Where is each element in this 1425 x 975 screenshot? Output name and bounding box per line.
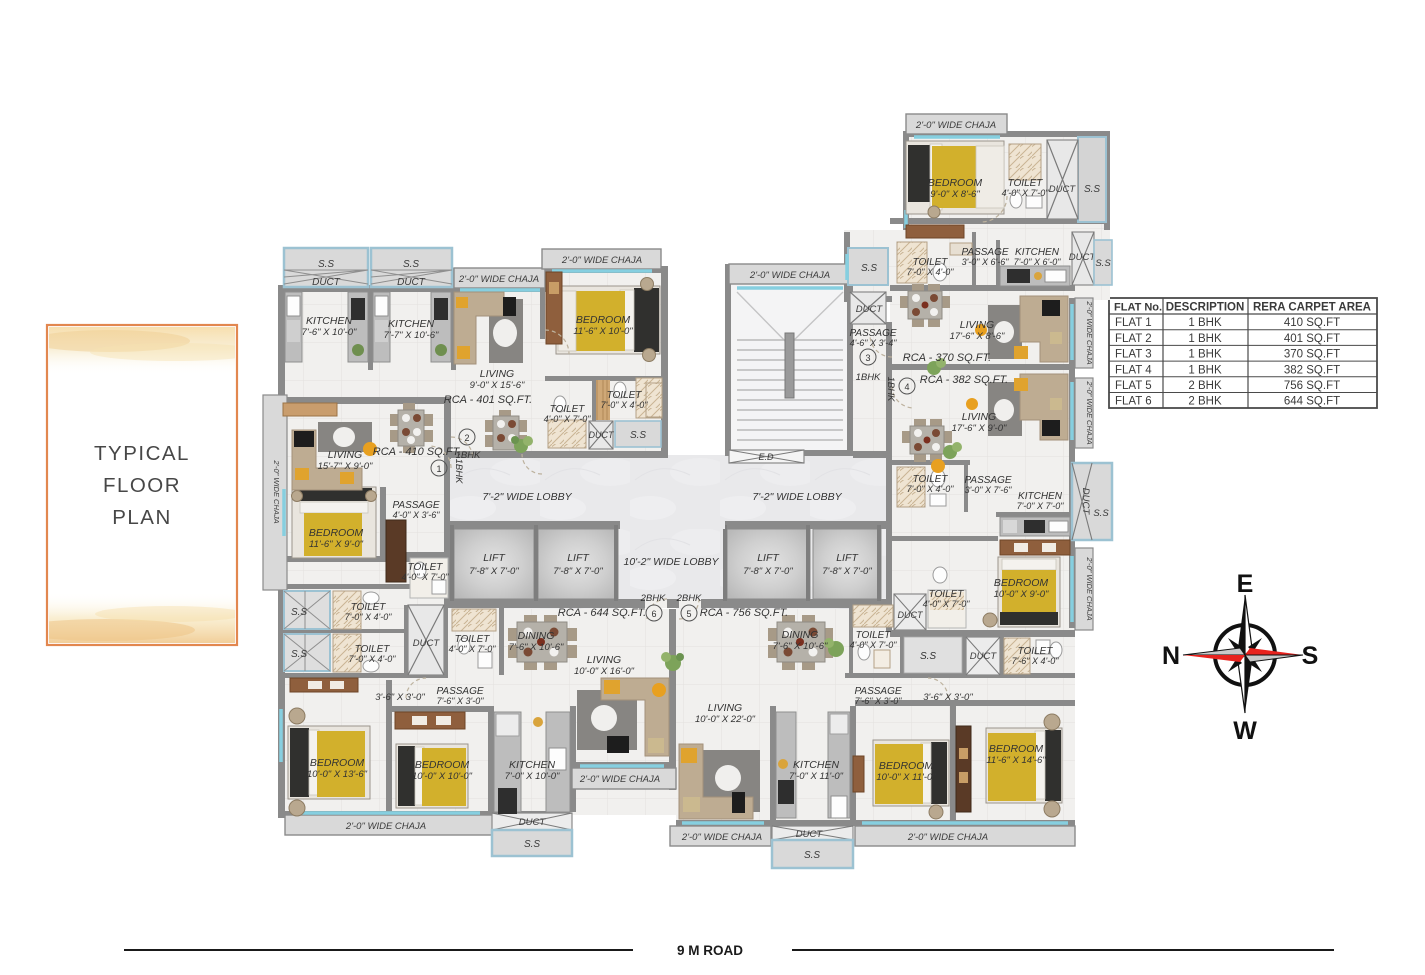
- svg-text:DUCT: DUCT: [413, 638, 441, 649]
- svg-text:1 BHK: 1 BHK: [1188, 364, 1222, 376]
- svg-text:2BHK: 2BHK: [640, 593, 666, 604]
- svg-text:BEDROOM: BEDROOM: [576, 314, 631, 326]
- svg-text:7'-0" X 4'-0": 7'-0" X 4'-0": [601, 400, 649, 410]
- svg-text:4: 4: [904, 382, 909, 392]
- svg-text:RERA CARPET AREA: RERA CARPET AREA: [1253, 302, 1371, 314]
- svg-text:DUCT: DUCT: [1049, 184, 1077, 195]
- svg-text:S.S: S.S: [630, 430, 646, 441]
- svg-text:10'-2" WIDE LOBBY: 10'-2" WIDE LOBBY: [623, 556, 719, 568]
- svg-text:FLOOR: FLOOR: [103, 474, 181, 497]
- svg-text:S.S: S.S: [291, 649, 307, 660]
- svg-text:7'-0" X 4'-0": 7'-0" X 4'-0": [907, 484, 955, 494]
- svg-text:2'-0" WIDE CHAJA: 2'-0" WIDE CHAJA: [749, 270, 830, 281]
- svg-text:2'-0" WIDE CHAJA: 2'-0" WIDE CHAJA: [272, 459, 281, 523]
- svg-text:4'-6" X 3'-4": 4'-6" X 3'-4": [850, 338, 898, 348]
- svg-text:1 BHK: 1 BHK: [1188, 349, 1222, 361]
- svg-text:KITCHEN: KITCHEN: [306, 315, 353, 327]
- svg-text:DUCT: DUCT: [1069, 252, 1097, 263]
- svg-text:LIFT: LIFT: [836, 552, 859, 564]
- svg-text:2 BHK: 2 BHK: [1188, 396, 1222, 408]
- svg-text:2 BHK: 2 BHK: [1188, 380, 1222, 392]
- svg-text:S.S: S.S: [804, 850, 820, 861]
- svg-text:DUCT: DUCT: [1080, 488, 1091, 516]
- svg-text:2'-0" WIDE CHAJA: 2'-0" WIDE CHAJA: [458, 274, 539, 285]
- svg-text:7'-0" X 4'-0": 7'-0" X 4'-0": [349, 654, 397, 664]
- svg-text:7'-0" X 10'-0": 7'-0" X 10'-0": [505, 771, 560, 782]
- svg-text:BEDROOM: BEDROOM: [309, 527, 364, 539]
- svg-text:17'-6" X 9'-0": 17'-6" X 9'-0": [952, 423, 1007, 434]
- svg-text:410 SQ.FT: 410 SQ.FT: [1284, 317, 1340, 329]
- svg-text:10'-0" X 10'-0": 10'-0" X 10'-0": [412, 771, 473, 782]
- svg-text:1 BHK: 1 BHK: [1188, 333, 1222, 345]
- svg-text:FLAT 6: FLAT 6: [1115, 396, 1152, 408]
- svg-text:BEDROOM: BEDROOM: [928, 177, 983, 189]
- svg-text:7'-6" X 10'-0": 7'-6" X 10'-0": [302, 327, 357, 338]
- svg-text:7'-6" X 3'-0": 7'-6" X 3'-0": [437, 696, 485, 706]
- svg-text:7'-6" X 3'-0": 7'-6" X 3'-0": [855, 696, 903, 706]
- svg-text:7'-6" X 4'-0": 7'-6" X 4'-0": [1012, 656, 1060, 666]
- svg-text:DINING: DINING: [518, 630, 555, 642]
- svg-text:DINING: DINING: [782, 629, 819, 641]
- svg-text:2'-0" WIDE CHAJA: 2'-0" WIDE CHAJA: [1085, 300, 1094, 364]
- svg-text:DESCRIPTION: DESCRIPTION: [1166, 302, 1245, 314]
- svg-text:7'-6" X 10'-6": 7'-6" X 10'-6": [773, 641, 828, 652]
- svg-text:9 M ROAD: 9 M ROAD: [677, 943, 743, 958]
- svg-text:2'-0" WIDE CHAJA: 2'-0" WIDE CHAJA: [915, 120, 996, 131]
- svg-text:7'-8" X 7'-0": 7'-8" X 7'-0": [469, 566, 519, 577]
- svg-text:S.S: S.S: [1084, 184, 1100, 195]
- svg-text:4'-0" X 7'-0": 4'-0" X 7'-0": [850, 640, 898, 650]
- svg-text:1BHK: 1BHK: [453, 459, 464, 484]
- svg-text:5: 5: [686, 609, 691, 619]
- svg-text:3: 3: [865, 353, 870, 363]
- svg-text:DUCT: DUCT: [856, 304, 884, 315]
- svg-text:S.S: S.S: [861, 263, 877, 274]
- svg-text:S.S: S.S: [318, 259, 334, 270]
- svg-text:7'-7" X 10'-6": 7'-7" X 10'-6": [384, 330, 439, 341]
- svg-text:3'-6" X 3'-0": 3'-6" X 3'-0": [923, 692, 973, 703]
- svg-text:FLAT 3: FLAT 3: [1115, 349, 1152, 361]
- svg-text:RCA - 401 SQ.FT.: RCA - 401 SQ.FT.: [444, 394, 532, 406]
- svg-text:DUCT: DUCT: [970, 651, 998, 662]
- svg-text:2'-0" WIDE CHAJA: 2'-0" WIDE CHAJA: [907, 832, 988, 843]
- svg-text:S.S: S.S: [403, 259, 419, 270]
- svg-text:4'-0" X 3'-6": 4'-0" X 3'-6": [393, 510, 441, 520]
- svg-text:DUCT: DUCT: [589, 430, 615, 440]
- svg-text:1BHK: 1BHK: [885, 377, 896, 402]
- svg-text:756 SQ.FT: 756 SQ.FT: [1284, 380, 1340, 392]
- svg-text:2'-0" WIDE CHAJA: 2'-0" WIDE CHAJA: [1085, 556, 1094, 620]
- svg-text:2'-0" WIDE CHAJA: 2'-0" WIDE CHAJA: [345, 821, 426, 832]
- svg-text:S: S: [1302, 642, 1319, 670]
- svg-text:S.S: S.S: [1095, 258, 1111, 269]
- svg-text:KITCHEN: KITCHEN: [388, 318, 435, 330]
- svg-text:DUCT: DUCT: [796, 829, 824, 840]
- svg-text:7'-8" X 7'-0": 7'-8" X 7'-0": [822, 566, 872, 577]
- svg-text:2'-0" WIDE CHAJA: 2'-0" WIDE CHAJA: [1085, 380, 1094, 444]
- svg-text:KITCHEN: KITCHEN: [793, 759, 840, 771]
- svg-text:W: W: [1233, 717, 1257, 745]
- svg-text:S.S: S.S: [524, 839, 540, 850]
- svg-text:2BHK: 2BHK: [676, 593, 702, 604]
- svg-text:LIVING: LIVING: [708, 702, 742, 714]
- svg-text:S.S: S.S: [1093, 508, 1109, 519]
- svg-text:10'-0" X 22'-0": 10'-0" X 22'-0": [695, 714, 756, 725]
- svg-text:10'-0" X 11'-0": 10'-0" X 11'-0": [876, 772, 936, 783]
- svg-text:11'-6" X 10'-0": 11'-6" X 10'-0": [573, 326, 633, 337]
- svg-text:9'-0" X 15'-6": 9'-0" X 15'-6": [470, 380, 525, 391]
- svg-text:BEDROOM: BEDROOM: [415, 759, 470, 771]
- svg-text:3'-6" X 3'-0": 3'-6" X 3'-0": [375, 692, 425, 703]
- svg-text:PLAN: PLAN: [112, 506, 172, 529]
- svg-text:370 SQ.FT: 370 SQ.FT: [1284, 349, 1340, 361]
- svg-text:7'-2" WIDE LOBBY: 7'-2" WIDE LOBBY: [752, 491, 842, 503]
- svg-text:LIVING: LIVING: [962, 411, 996, 423]
- svg-text:4'-0" X 7'-0": 4'-0" X 7'-0": [923, 599, 971, 609]
- svg-text:FLAT 2: FLAT 2: [1115, 333, 1152, 345]
- svg-text:3'-0" X 6'-6": 3'-0" X 6'-6": [962, 257, 1010, 267]
- svg-text:S.S: S.S: [291, 607, 307, 618]
- svg-text:4'-0" X 7'-0": 4'-0" X 7'-0": [1002, 188, 1050, 198]
- svg-text:FLAT 5: FLAT 5: [1115, 380, 1152, 392]
- svg-text:2: 2: [464, 433, 469, 443]
- svg-text:11'-6" X 14'-6": 11'-6" X 14'-6": [986, 755, 1046, 766]
- svg-text:7'-0" X 11'-0": 7'-0" X 11'-0": [789, 771, 844, 782]
- svg-text:RCA - 370 SQ.FT.: RCA - 370 SQ.FT.: [903, 352, 991, 364]
- svg-text:644 SQ.FT: 644 SQ.FT: [1284, 396, 1340, 408]
- svg-text:FLAT No.: FLAT No.: [1114, 302, 1162, 314]
- svg-text:RCA - 382 SQ.FT.: RCA - 382 SQ.FT.: [920, 374, 1008, 386]
- svg-text:RCA - 756 SQ.FT.: RCA - 756 SQ.FT.: [700, 607, 788, 619]
- svg-text:LIFT: LIFT: [757, 552, 780, 564]
- svg-text:FLAT 1: FLAT 1: [1115, 317, 1152, 329]
- svg-text:7'-0" X 6'-0": 7'-0" X 6'-0": [1014, 257, 1062, 267]
- svg-text:10'-0" X 9'-0": 10'-0" X 9'-0": [994, 589, 1049, 600]
- svg-text:4'-0" X 7'-0": 4'-0" X 7'-0": [449, 644, 497, 654]
- svg-text:RCA - 644 SQ.FT.: RCA - 644 SQ.FT.: [558, 607, 646, 619]
- svg-text:BEDROOM: BEDROOM: [310, 757, 365, 769]
- svg-text:LIVING: LIVING: [587, 654, 621, 666]
- svg-text:DUCT: DUCT: [898, 610, 924, 620]
- svg-text:S.S: S.S: [920, 651, 936, 662]
- svg-text:10'-0" X 16'-0": 10'-0" X 16'-0": [574, 666, 635, 677]
- svg-text:9'-0" X 8'-6": 9'-0" X 8'-6": [930, 189, 980, 200]
- svg-text:401 SQ.FT: 401 SQ.FT: [1284, 333, 1340, 345]
- svg-text:1 BHK: 1 BHK: [1188, 317, 1222, 329]
- svg-text:N: N: [1162, 642, 1180, 670]
- svg-text:7'-0" X 4'-0": 7'-0" X 4'-0": [907, 267, 955, 277]
- svg-text:2'-0" WIDE CHAJA: 2'-0" WIDE CHAJA: [561, 255, 642, 266]
- svg-text:E: E: [1237, 570, 1254, 598]
- svg-text:LIFT: LIFT: [483, 552, 506, 564]
- svg-text:LIVING: LIVING: [960, 319, 994, 331]
- svg-text:DUCT: DUCT: [312, 277, 341, 288]
- svg-text:2'-0" WIDE CHAJA: 2'-0" WIDE CHAJA: [681, 832, 762, 843]
- svg-text:LIVING: LIVING: [480, 368, 514, 380]
- svg-text:DUCT: DUCT: [397, 277, 426, 288]
- svg-text:7'-0" X 4'-0": 7'-0" X 4'-0": [345, 612, 393, 622]
- svg-text:RCA - 410 SQ.FT.: RCA - 410 SQ.FT.: [373, 446, 461, 458]
- svg-text:7'-0" X 7'-0": 7'-0" X 7'-0": [1017, 501, 1065, 511]
- svg-text:10'-0" X 13'-6": 10'-0" X 13'-6": [307, 769, 368, 780]
- svg-text:FLAT 4: FLAT 4: [1115, 364, 1152, 376]
- svg-text:1BHK: 1BHK: [856, 372, 881, 383]
- svg-text:7'-2" WIDE LOBBY: 7'-2" WIDE LOBBY: [482, 491, 572, 503]
- svg-text:7'-8" X 7'-0": 7'-8" X 7'-0": [553, 566, 603, 577]
- svg-text:TYPICAL: TYPICAL: [94, 442, 190, 465]
- svg-text:4'-0" X 7'-0": 4'-0" X 7'-0": [544, 414, 592, 424]
- svg-text:11'-6" X 9'-0": 11'-6" X 9'-0": [309, 539, 364, 550]
- svg-text:BEDROOM: BEDROOM: [994, 577, 1049, 589]
- svg-text:LIFT: LIFT: [567, 552, 590, 564]
- svg-text:DUCT: DUCT: [519, 817, 547, 828]
- svg-text:4'-0" X 7'-0": 4'-0" X 7'-0": [402, 572, 450, 582]
- svg-text:KITCHEN: KITCHEN: [509, 759, 556, 771]
- svg-text:382 SQ.FT: 382 SQ.FT: [1284, 364, 1340, 376]
- svg-text:LIVING: LIVING: [328, 449, 362, 461]
- svg-text:BEDROOM: BEDROOM: [989, 743, 1044, 755]
- svg-text:3'-0" X 7'-6": 3'-0" X 7'-6": [965, 485, 1013, 495]
- svg-text:BEDROOM: BEDROOM: [879, 760, 934, 772]
- svg-text:7'-6" X 10'-6": 7'-6" X 10'-6": [509, 642, 564, 653]
- svg-text:6: 6: [651, 609, 656, 619]
- svg-text:2'-0" WIDE CHAJA: 2'-0" WIDE CHAJA: [579, 774, 660, 785]
- svg-text:1: 1: [436, 464, 441, 474]
- svg-text:E.D: E.D: [758, 452, 774, 462]
- svg-text:7'-8" X 7'-0": 7'-8" X 7'-0": [743, 566, 793, 577]
- svg-text:15'-7" X 9'-0": 15'-7" X 9'-0": [318, 461, 373, 472]
- svg-text:17'-6" X 8'-6": 17'-6" X 8'-6": [950, 331, 1005, 342]
